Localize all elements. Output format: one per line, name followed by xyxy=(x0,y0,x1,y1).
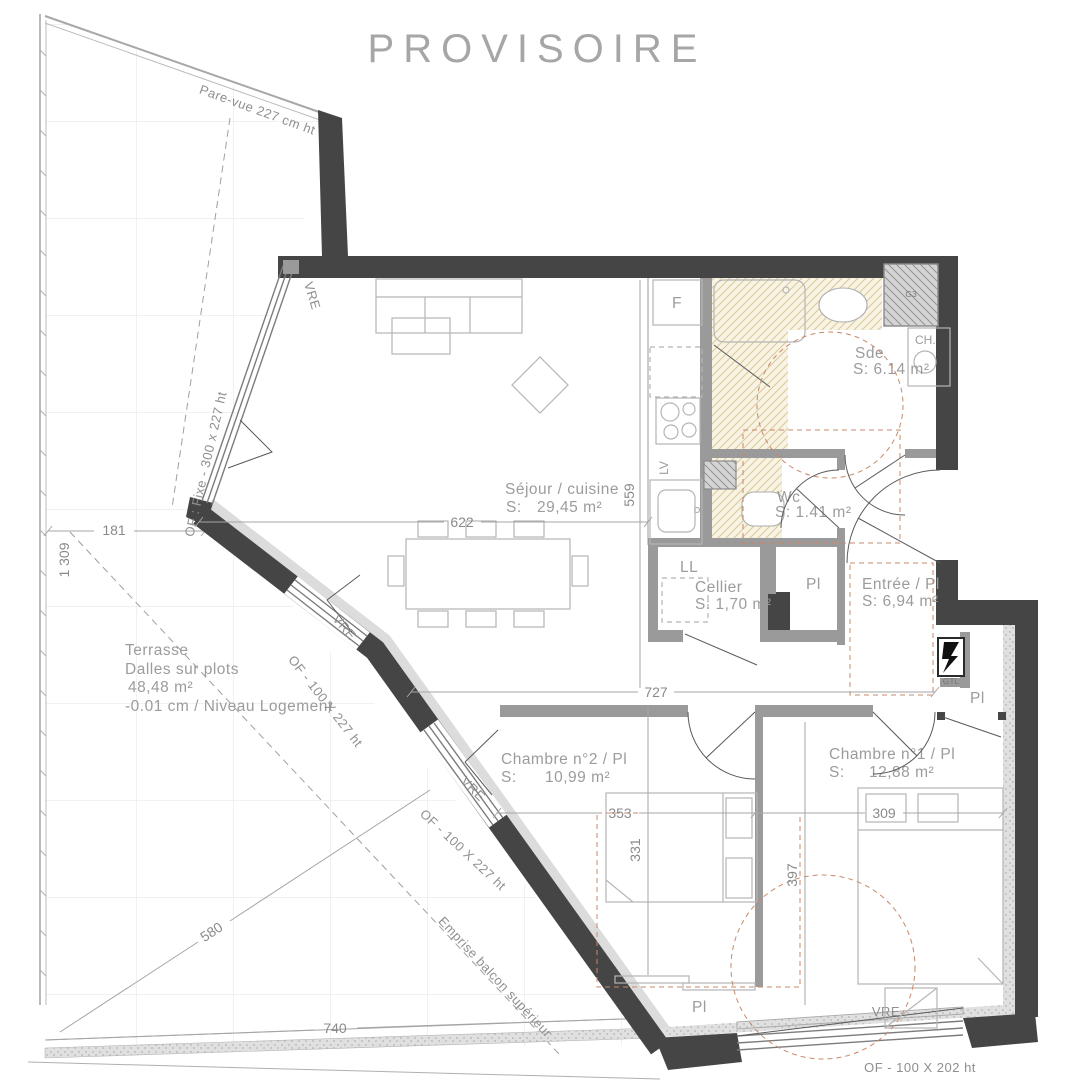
room-area-entree: S: 6,94 m² xyxy=(862,593,939,610)
closet-door-leaf xyxy=(943,717,1001,737)
floor-plan-page: PROVISOIRE Pare-vue 227 cm ht Terrasse D… xyxy=(0,0,1074,1080)
room-area-prefix-chambre1: S: xyxy=(829,764,845,781)
room-area-chambre1: 12,88 m² xyxy=(869,764,934,781)
room-area-prefix-chambre2: S: xyxy=(501,769,517,786)
coffee-table xyxy=(392,318,450,354)
gtl-label: GTL xyxy=(943,676,960,686)
room-area-sde: S: 6.14 m² xyxy=(853,361,930,378)
fridge-label: F xyxy=(672,295,682,312)
room-area-chambre2: 10,99 m² xyxy=(545,769,610,786)
dim-1309: 1 309 xyxy=(56,542,72,577)
room-name-sde: Sde xyxy=(855,345,884,362)
terrasse-niveau: -0.01 cm / Niveau Logement xyxy=(125,698,333,715)
room-area-prefix-sejour: S: xyxy=(506,499,522,516)
room-name-entree: Entrée / Pl xyxy=(862,576,940,593)
washbasin xyxy=(819,288,867,322)
dim-622: 622 xyxy=(450,514,474,530)
sejour-furniture xyxy=(376,279,588,627)
cellier-door xyxy=(685,634,757,665)
upper-cabinet xyxy=(650,347,702,397)
dim-331: 331 xyxy=(627,838,643,862)
wc-duct xyxy=(704,461,736,489)
sofa xyxy=(376,279,522,333)
closet-label-right: Pl xyxy=(970,690,985,707)
dim-727: 727 xyxy=(644,684,668,700)
sde-room: G3 CH. Sde S: 6.14 m² xyxy=(712,264,950,478)
sejour-label: Séjour / cuisine S: 29,45 m² xyxy=(505,481,619,516)
dining-table xyxy=(406,539,570,609)
terrasse-dalles: Dalles sur plots xyxy=(125,661,239,678)
terrasse-name: Terrasse xyxy=(125,642,188,659)
room-area-wc: S: 1.41 m² xyxy=(775,504,852,521)
kitchen: F LV xyxy=(648,278,702,545)
room-name-sejour: Séjour / cuisine xyxy=(505,481,619,498)
closet-right: Pl xyxy=(937,690,1006,737)
dim-559: 559 xyxy=(621,483,637,507)
window-label-vre-left: VRE xyxy=(301,280,324,311)
room-name-chambre1: Chambre n°1 / Pl xyxy=(829,746,955,763)
terrace-slab-grid xyxy=(0,0,1074,1080)
window-label-of202: OF - 100 X 202 ht xyxy=(864,1060,976,1075)
washer-label: LL xyxy=(680,559,698,576)
terrace xyxy=(0,0,1074,1080)
dim-181: 181 xyxy=(102,522,126,538)
room-name-chambre2: Chambre n°2 / Pl xyxy=(501,751,627,768)
terrasse-area: 48,48 m² xyxy=(128,679,193,696)
room-name-cellier: Cellier xyxy=(695,579,742,596)
duct-g3-label: G3 xyxy=(905,289,917,299)
dishwasher-label: LV xyxy=(657,461,671,475)
room-area-cellier: S: 1,70 m² xyxy=(695,596,772,613)
room-area-sejour: 29,45 m² xyxy=(537,499,602,516)
floor-plan-drawing: PROVISOIRE Pare-vue 227 cm ht Terrasse D… xyxy=(0,0,1074,1080)
water-heater-label: CH. xyxy=(915,333,936,347)
window-opening-fan xyxy=(228,420,272,468)
dim-740: 740 xyxy=(323,1020,347,1036)
page-title: PROVISOIRE xyxy=(368,27,707,71)
dim-309: 309 xyxy=(872,805,896,821)
closet-label-middle: Pl xyxy=(806,576,821,593)
cellier-room: LL Cellier S: 1,70 m² Pl xyxy=(662,559,821,665)
dim-353: 353 xyxy=(608,805,632,821)
side-table xyxy=(512,357,568,413)
front-door-leaf xyxy=(858,518,940,563)
shower-floor-hatch xyxy=(712,278,788,449)
window-label-vre-bottom: VRE xyxy=(872,1004,900,1019)
closet-label-chambre2: Pl xyxy=(692,999,707,1016)
dim-397: 397 xyxy=(784,863,800,887)
